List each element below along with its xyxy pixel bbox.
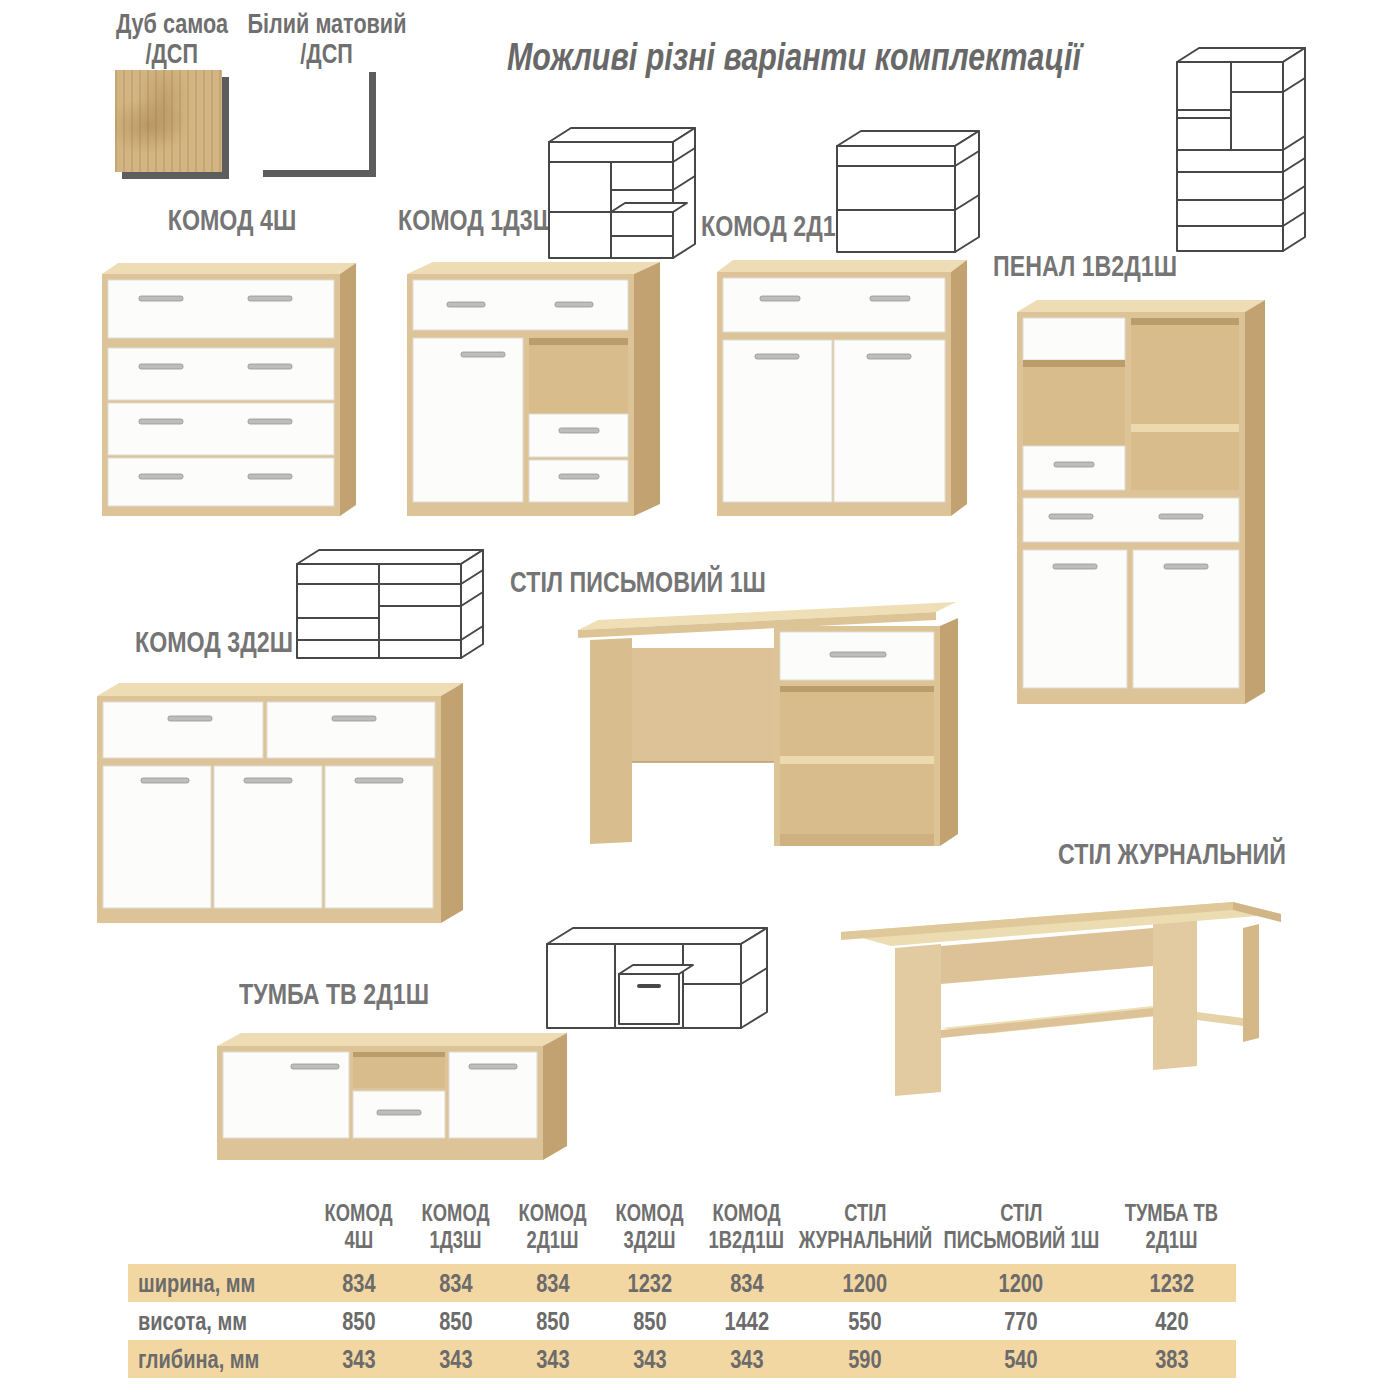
photo-komod-4sh [98,258,360,524]
spec-col-header: КОМОД4Ш [310,1196,407,1264]
wireframe-komod-2d1sh [833,118,983,258]
spec-col-header: СТІЛПИСЬМОВИЙ 1Ш [935,1196,1107,1264]
spec-row-label: глибина, мм [128,1340,310,1378]
label-komod-3d2sh: КОМОД 3Д2Ш [115,626,312,659]
spec-cell: 383 [1107,1340,1236,1378]
spec-cell: 590 [795,1340,935,1378]
spec-cell: 343 [601,1340,698,1378]
spec-col-header: СТІЛЖУРНАЛЬНИЙ [795,1196,935,1264]
spec-cell: 834 [310,1264,407,1302]
spec-col-header: КОМОД1Д3Ш [407,1196,504,1264]
spec-col-header: ТУМБА ТВ2Д1Ш [1107,1196,1236,1264]
spec-cell: 1200 [795,1264,935,1302]
spec-cell: 343 [310,1340,407,1378]
spec-cell: 1232 [1107,1264,1236,1302]
spec-cell: 1232 [601,1264,698,1302]
spec-row-label: висота, мм [128,1302,310,1340]
wireframe-komod-3d2sh [291,536,489,670]
spec-cell: 850 [504,1302,601,1340]
spec-cell: 850 [310,1302,407,1340]
spec-cell: 420 [1107,1302,1236,1340]
spec-cell: 550 [795,1302,935,1340]
spec-col-header: КОМОД3Д2Ш [601,1196,698,1264]
spec-cell: 1200 [935,1264,1107,1302]
spec-table-header: КОМОД4Ш КОМОД1Д3Ш КОМОД2Д1Ш КОМОД3Д2Ш КО… [128,1196,1236,1264]
spec-col-header: КОМОД2Д1Ш [504,1196,601,1264]
photo-tumba-tv [213,1026,581,1166]
spec-cell: 834 [698,1264,795,1302]
white-material-swatch [263,72,376,177]
photo-penal-1v2d1sh [1013,296,1271,714]
wireframe-penal-1v2d1sh [1173,30,1308,265]
photo-stil-pysmovyi [568,598,968,850]
spec-col-header-empty [128,1196,310,1264]
spec-row-depth: глибина, мм 343 343 343 343 343 590 540 … [128,1340,1236,1378]
photo-komod-1d3sh [403,258,665,524]
spec-col-header: КОМОД1В2Д1Ш [698,1196,795,1264]
photo-stil-zhurnalnyi [833,888,1293,1103]
spec-cell: 834 [407,1264,504,1302]
spec-cell: 834 [504,1264,601,1302]
spec-row-label: ширина, мм [128,1264,310,1302]
label-komod-4sh: КОМОД 4Ш [152,204,313,237]
oak-material-swatch [115,70,222,172]
spec-table: КОМОД4Ш КОМОД1Д3Ш КОМОД2Д1Ш КОМОД3Д2Ш КО… [128,1196,1236,1378]
spec-cell: 343 [504,1340,601,1378]
spec-row-width: ширина, мм 834 834 834 1232 834 1200 120… [128,1264,1236,1302]
photo-komod-2d1sh [713,254,971,534]
wireframe-komod-1d3sh [545,112,700,262]
spec-cell: 343 [698,1340,795,1378]
page-title: Можливі різні варіанти комплектації [435,36,1152,79]
spec-row-height: висота, мм 850 850 850 850 1442 550 770 … [128,1302,1236,1340]
spec-cell: 850 [601,1302,698,1340]
spec-cell: 770 [935,1302,1107,1340]
label-stil-zhurnalnyi: СТІЛ ЖУРНАЛЬНИЙ [1030,838,1315,871]
photo-komod-3d2sh [93,678,473,930]
spec-cell: 850 [407,1302,504,1340]
catalog-page: Можливі різні варіанти комплектації Дуб … [0,0,1400,1400]
label-stil-pysmovyi: СТІЛ ПИСЬМОВИЙ 1Ш [478,566,798,599]
oak-swatch-label: Дуб самоа /ДСП [102,10,242,69]
label-tumba-tv: ТУМБА ТВ 2Д1Ш [215,978,452,1011]
spec-cell: 343 [407,1340,504,1378]
spec-cell: 540 [935,1340,1107,1378]
spec-cell: 1442 [698,1302,795,1340]
label-penal-1v2d1sh: ПЕНАЛ 1В2Д1Ш [970,250,1200,283]
wireframe-tumba-tv [543,914,771,1042]
white-swatch-label: Білий матовий /ДСП [228,10,427,69]
